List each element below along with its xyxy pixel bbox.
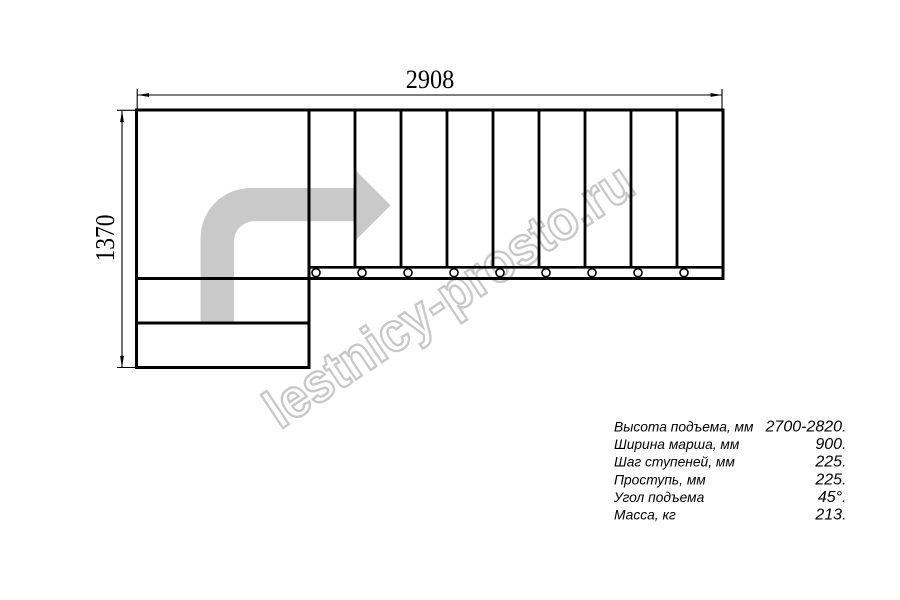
svg-text:2700-2820.: 2700-2820.: [765, 419, 847, 436]
svg-text:2908: 2908: [406, 65, 455, 94]
svg-text:Шаг ступеней, мм: Шаг ступеней, мм: [614, 455, 735, 470]
svg-text:Угол подъема: Угол подъема: [613, 490, 705, 505]
svg-text:Ширина марша, мм: Ширина марша, мм: [614, 437, 740, 452]
svg-text:225.: 225.: [814, 454, 846, 471]
svg-text:Высота подъема, мм: Высота подъема, мм: [614, 420, 754, 435]
svg-text:213.: 213.: [814, 507, 846, 524]
svg-text:1370: 1370: [90, 215, 120, 262]
svg-text:Проступь, мм: Проступь, мм: [614, 473, 706, 488]
svg-text:900.: 900.: [815, 436, 846, 453]
svg-text:225.: 225.: [814, 472, 846, 489]
svg-text:Масса, кг: Масса, кг: [614, 508, 676, 523]
svg-text:45°.: 45°.: [818, 489, 847, 506]
